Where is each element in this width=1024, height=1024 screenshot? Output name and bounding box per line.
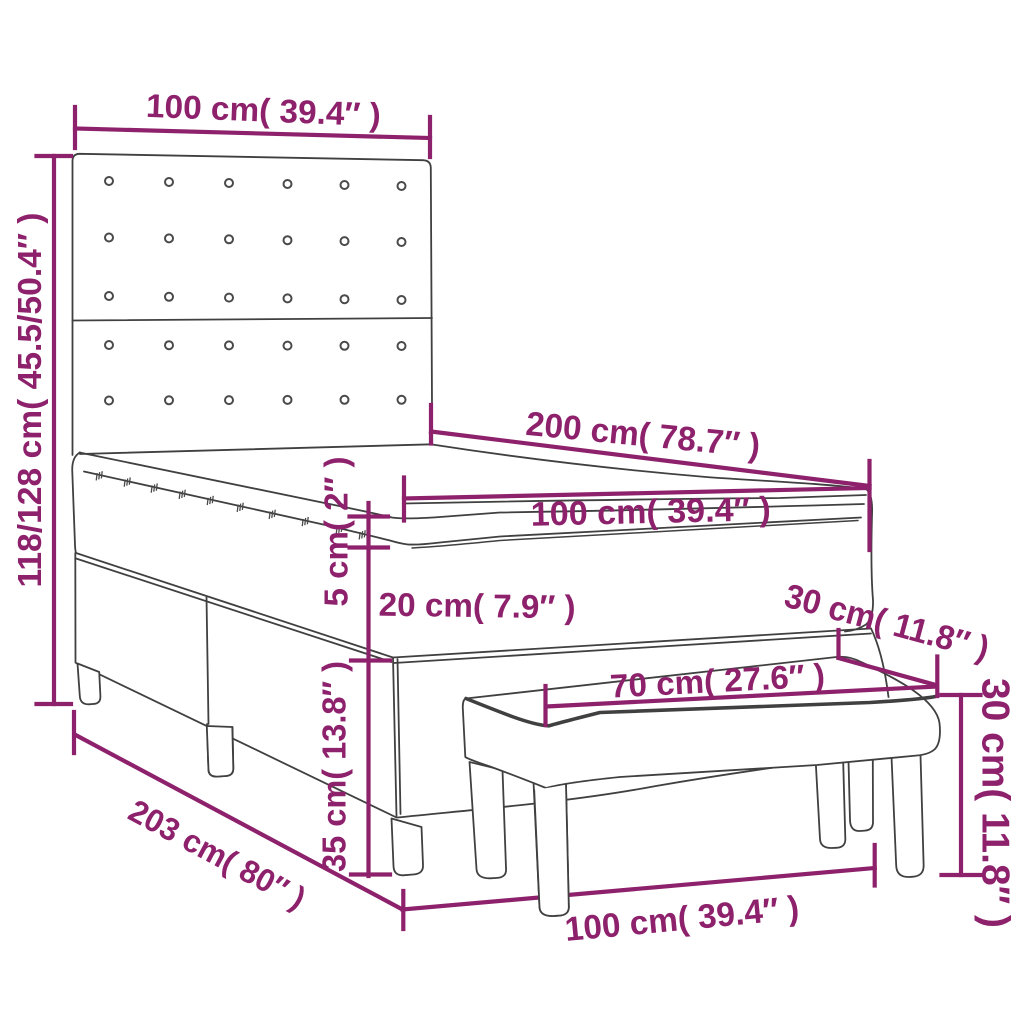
svg-text:35 cm( 13.8″ ): 35 cm( 13.8″ ) xyxy=(316,661,353,872)
svg-text:100 cm( 39.4″ ): 100 cm( 39.4″ ) xyxy=(530,490,771,533)
svg-text:118/128 cm( 45.5/50.4″ ): 118/128 cm( 45.5/50.4″ ) xyxy=(12,213,49,588)
svg-text:30 cm( 11.8″ ): 30 cm( 11.8″ ) xyxy=(974,678,1017,928)
svg-text:20 cm( 7.9″ ): 20 cm( 7.9″ ) xyxy=(378,586,575,626)
svg-text:5 cm( 2″ ): 5 cm( 2″ ) xyxy=(318,457,355,607)
